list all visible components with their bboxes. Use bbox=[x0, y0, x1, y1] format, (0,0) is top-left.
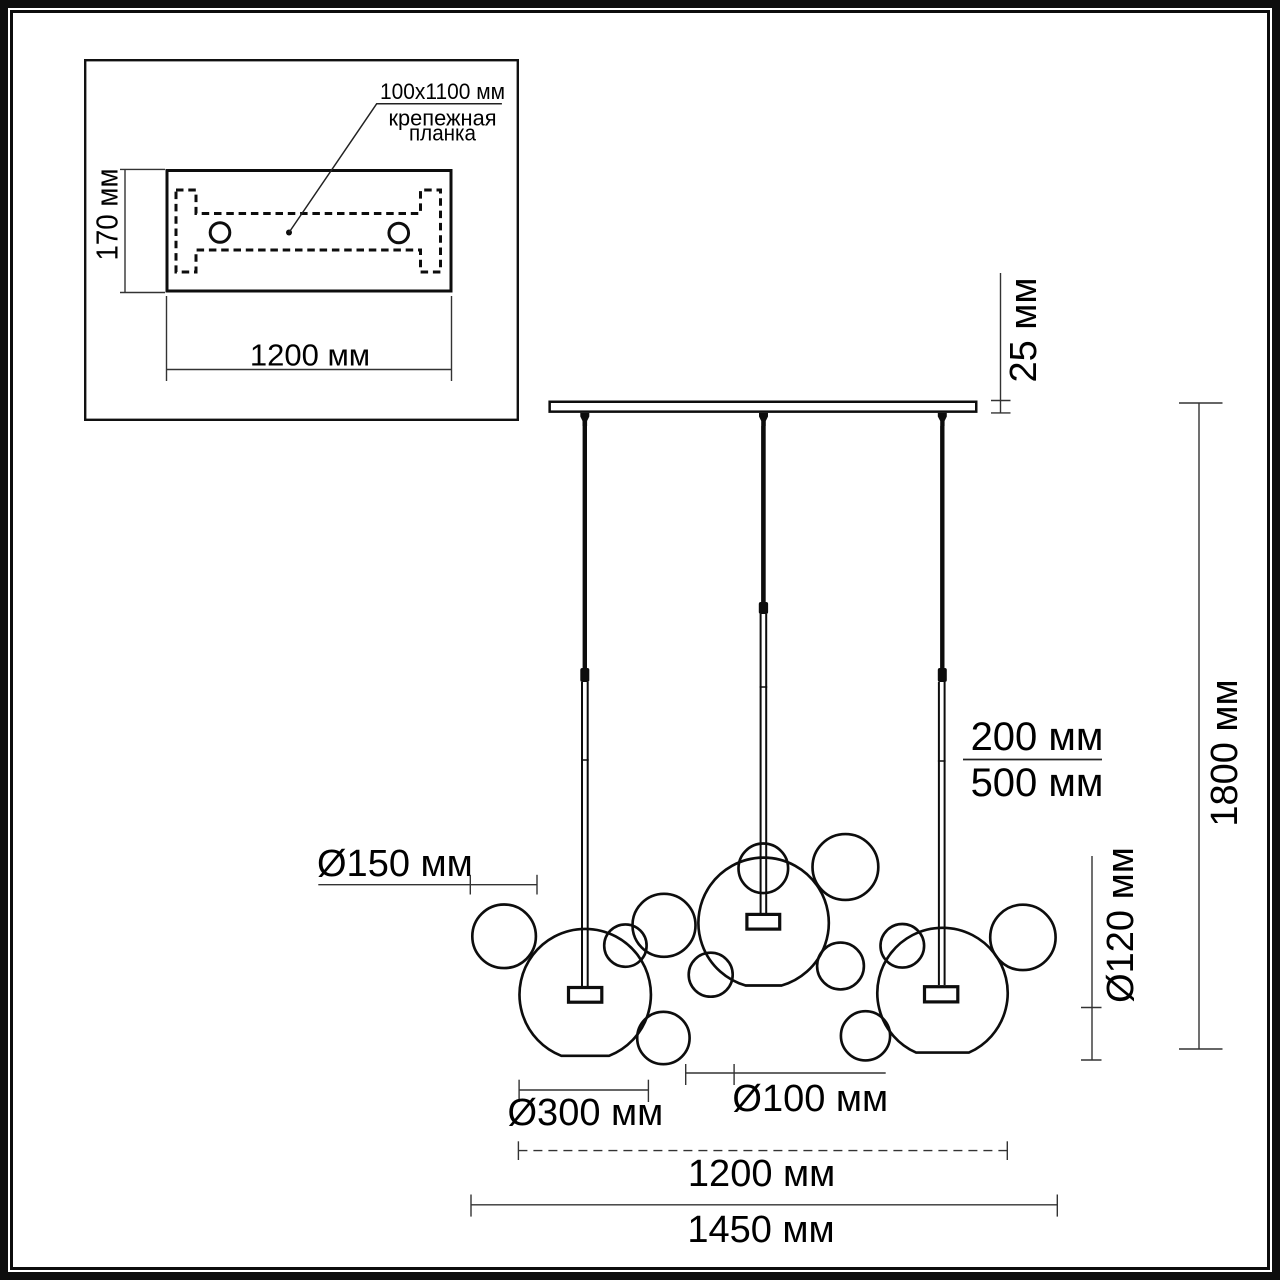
svg-text:Ø100 мм: Ø100 мм bbox=[732, 1078, 888, 1120]
svg-text:200 мм: 200 мм bbox=[971, 715, 1104, 759]
svg-text:Ø120 мм: Ø120 мм bbox=[1100, 847, 1142, 1003]
svg-text:1800 мм: 1800 мм bbox=[1204, 679, 1246, 826]
svg-text:планка: планка bbox=[409, 121, 477, 146]
svg-text:170 мм: 170 мм bbox=[90, 169, 125, 261]
svg-text:Ø300 мм: Ø300 мм bbox=[508, 1092, 664, 1134]
svg-text:1200 мм: 1200 мм bbox=[250, 338, 370, 373]
svg-text:100x1100 мм: 100x1100 мм bbox=[380, 79, 505, 104]
svg-text:1200 мм: 1200 мм bbox=[688, 1153, 835, 1195]
svg-text:500 мм: 500 мм bbox=[971, 761, 1104, 805]
svg-text:1450 мм: 1450 мм bbox=[687, 1209, 834, 1251]
svg-text:25 мм: 25 мм bbox=[1003, 277, 1045, 382]
svg-text:Ø150 мм: Ø150 мм bbox=[317, 843, 473, 885]
